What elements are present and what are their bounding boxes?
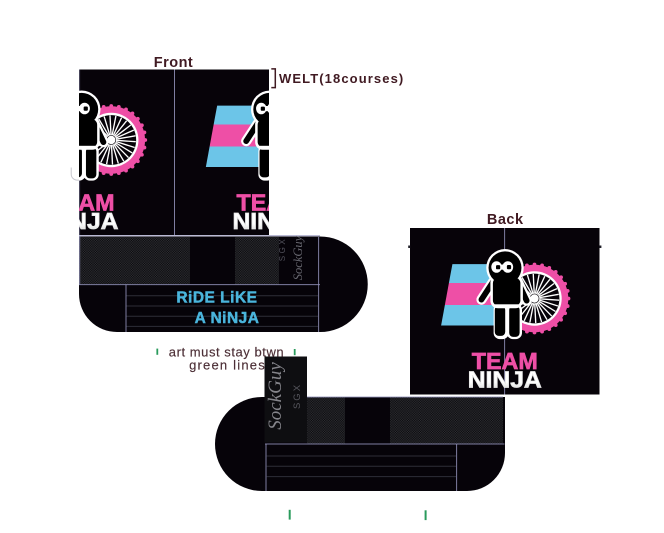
svg-text:Front: Front	[154, 55, 194, 71]
svg-text:Back: Back	[487, 212, 524, 228]
svg-text:A NiNJA: A NiNJA	[195, 310, 260, 327]
svg-text:SGX: SGX	[292, 383, 303, 409]
svg-text:RiDE LiKE: RiDE LiKE	[176, 289, 257, 306]
svg-text:WELT(18courses): WELT(18courses)	[279, 71, 404, 86]
svg-text:SGX: SGX	[278, 237, 287, 261]
svg-text:SockGuy: SockGuy	[291, 235, 305, 280]
svg-text:green lines: green lines	[189, 358, 266, 373]
svg-text:SockGuy: SockGuy	[265, 362, 286, 430]
